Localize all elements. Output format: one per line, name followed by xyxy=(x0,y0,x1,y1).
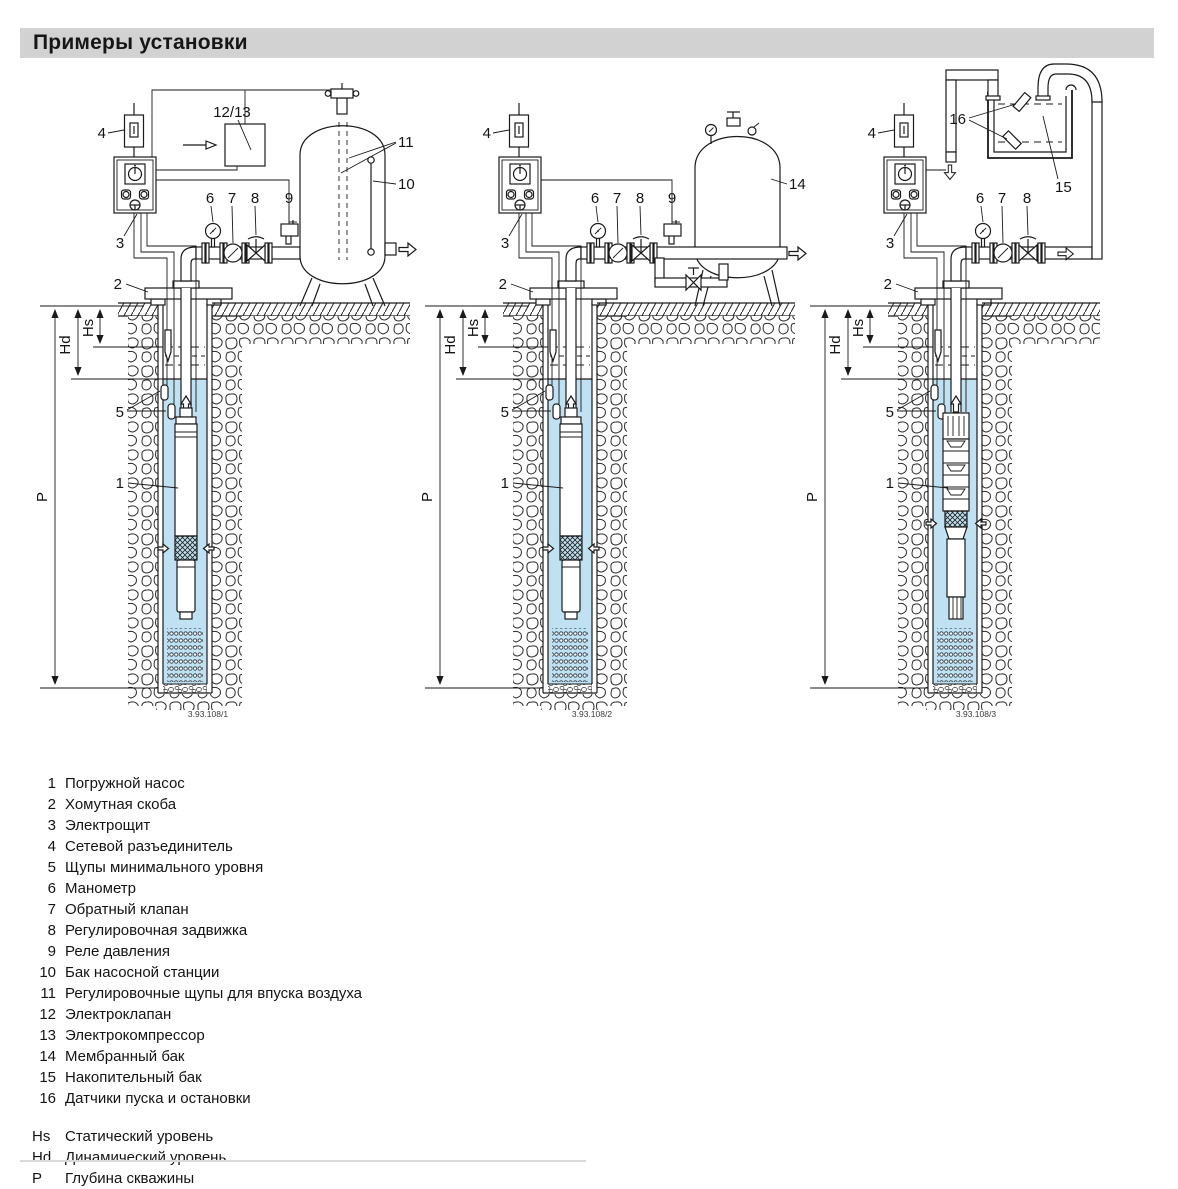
legend-item-number: 8 xyxy=(32,920,56,941)
legend-item-text: Щупы минимального уровня xyxy=(65,857,263,878)
callout-4: 4 xyxy=(483,125,491,142)
diagram-well-with-storage-tank: 4 3 2 5 1 6 7 8 16 15 Hs Hd P 3.93.108/3 xyxy=(804,64,1102,719)
bottom-divider xyxy=(20,1160,586,1162)
callout-2: 2 xyxy=(114,276,122,293)
callout-7: 7 xyxy=(228,190,236,207)
legend-item-text: Накопительный бак xyxy=(65,1067,202,1088)
electrovalve-compressor-box xyxy=(225,124,265,166)
dim-label-hd: Hd xyxy=(827,335,844,354)
legend-item-text: Регулировочная задвижка xyxy=(65,920,247,941)
callout-8: 8 xyxy=(1023,190,1031,207)
dim-label-hs: Hs xyxy=(850,319,867,337)
figure-number: 3.93.108/2 xyxy=(572,709,612,719)
diagram-well-with-pump-station-tank: 4 3 12/13 2 5 1 6 7 8 9 10 11 Hs Hd P 3.… xyxy=(34,83,416,719)
legend-item-text: Манометр xyxy=(65,878,136,899)
legend-item-text: Сетевой разъединитель xyxy=(65,836,233,857)
legend-item: 16Датчики пуска и остановки xyxy=(32,1088,362,1109)
legend-item: 2Хомутная скоба xyxy=(32,794,362,815)
figure-number: 3.93.108/1 xyxy=(188,709,228,719)
legend-item-number: 13 xyxy=(32,1025,56,1046)
figure-number: 3.93.108/3 xyxy=(956,709,996,719)
callout-5: 5 xyxy=(501,404,509,421)
legend: 1Погружной насос 2Хомутная скоба 3Электр… xyxy=(32,773,362,1189)
legend-item-number: 2 xyxy=(32,794,56,815)
dim-label-hs: Hs xyxy=(465,319,482,337)
legend-item-text: Статический уровень xyxy=(65,1126,213,1147)
legend-item-text: Обратный клапан xyxy=(65,899,189,920)
legend-item-number: Hd xyxy=(32,1147,56,1168)
legend-item-text: Реле давления xyxy=(65,941,170,962)
legend-item-number: 3 xyxy=(32,815,56,836)
membrane-tank xyxy=(695,112,780,306)
legend-item-text: Электрощит xyxy=(65,815,150,836)
callout-5: 5 xyxy=(116,404,124,421)
legend-item-text: Электроклапан xyxy=(65,1004,171,1025)
legend-item: HsСтатический уровень xyxy=(32,1126,362,1147)
legend-item-number: 12 xyxy=(32,1004,56,1025)
legend-item-number: Р xyxy=(32,1168,56,1189)
dim-label-hd: Hd xyxy=(57,335,74,354)
callout-7: 7 xyxy=(998,190,1006,207)
legend-item: 14Мембранный бак xyxy=(32,1046,362,1067)
callout-6: 6 xyxy=(591,190,599,207)
legend-item: HdДинамический уровень xyxy=(32,1147,362,1168)
dim-label-hd: Hd xyxy=(442,335,459,354)
legend-item: 5Щупы минимального уровня xyxy=(32,857,362,878)
callout-9: 9 xyxy=(668,190,676,207)
pump-station-tank xyxy=(300,83,416,306)
legend-dimensions: HsСтатический уровень HdДинамический уро… xyxy=(32,1126,362,1189)
callout-1: 1 xyxy=(501,475,509,492)
legend-item: 6Манометр xyxy=(32,878,362,899)
callout-1: 1 xyxy=(116,475,124,492)
legend-item-text: Динамический уровень xyxy=(65,1147,226,1168)
callout-2: 2 xyxy=(884,276,892,293)
dim-label-p: P xyxy=(419,492,436,502)
callout-5: 5 xyxy=(886,404,894,421)
legend-item-text: Электрокомпрессор xyxy=(65,1025,205,1046)
legend-item-number: 1 xyxy=(32,773,56,794)
legend-item-number: 16 xyxy=(32,1088,56,1109)
legend-item: 1Погружной насос xyxy=(32,773,362,794)
legend-item-number: 15 xyxy=(32,1067,56,1088)
legend-item: 4Сетевой разъединитель xyxy=(32,836,362,857)
dim-label-hs: Hs xyxy=(80,319,97,337)
legend-item-number: 11 xyxy=(32,983,56,1004)
callout-16: 16 xyxy=(949,111,966,128)
callout-2: 2 xyxy=(499,276,507,293)
callout-3: 3 xyxy=(501,235,509,252)
legend-item-text: Глубина скважины xyxy=(65,1168,194,1189)
legend-item-number: 14 xyxy=(32,1046,56,1067)
legend-item: 8Регулировочная задвижка xyxy=(32,920,362,941)
legend-item-text: Мембранный бак xyxy=(65,1046,184,1067)
legend-item-text: Регулировочные щупы для впуска воздуха xyxy=(65,983,362,1004)
legend-item-text: Хомутная скоба xyxy=(65,794,176,815)
callout-7: 7 xyxy=(613,190,621,207)
callout-9: 9 xyxy=(285,190,293,207)
callout-3: 3 xyxy=(116,235,124,252)
callout-6: 6 xyxy=(206,190,214,207)
callout-12-13: 12/13 xyxy=(213,104,251,121)
callout-8: 8 xyxy=(636,190,644,207)
callout-14: 14 xyxy=(789,176,806,193)
legend-item-text: Датчики пуска и остановки xyxy=(65,1088,251,1109)
legend-item-number: 7 xyxy=(32,899,56,920)
callout-15: 15 xyxy=(1055,179,1072,196)
legend-item: 12Электроклапан xyxy=(32,1004,362,1025)
legend-item: РГлубина скважины xyxy=(32,1168,362,1189)
legend-item: 7Обратный клапан xyxy=(32,899,362,920)
diagram-well-with-membrane-tank: 4 3 2 5 1 6 7 8 9 14 Hs Hd P 3.93.108/2 xyxy=(419,103,806,719)
callout-3: 3 xyxy=(886,235,894,252)
callout-11: 11 xyxy=(398,134,414,151)
legend-item: 10Бак насосной станции xyxy=(32,962,362,983)
legend-item-number: 4 xyxy=(32,836,56,857)
legend-item: 3Электрощит xyxy=(32,815,362,836)
callout-8: 8 xyxy=(251,190,259,207)
installation-diagrams: 4 3 12/13 2 5 1 6 7 8 9 10 11 Hs Hd P 3.… xyxy=(0,40,1178,775)
callout-4: 4 xyxy=(98,125,106,142)
legend-item: 11Регулировочные щупы для впуска воздуха xyxy=(32,983,362,1004)
legend-item: 15Накопительный бак xyxy=(32,1067,362,1088)
dim-label-p: P xyxy=(34,492,51,502)
storage-tank xyxy=(988,85,1076,158)
legend-item-number: Hs xyxy=(32,1126,56,1147)
callout-6: 6 xyxy=(976,190,984,207)
legend-item-number: 10 xyxy=(32,962,56,983)
legend-item: 13Электрокомпрессор xyxy=(32,1025,362,1046)
legend-item-number: 6 xyxy=(32,878,56,899)
callout-10: 10 xyxy=(398,176,415,193)
legend-item: 9Реле давления xyxy=(32,941,362,962)
legend-item-number: 9 xyxy=(32,941,56,962)
callout-1: 1 xyxy=(886,475,894,492)
legend-item-number: 5 xyxy=(32,857,56,878)
air-inlet-arrow xyxy=(206,141,216,149)
legend-item-text: Погружной насос xyxy=(65,773,185,794)
dim-label-p: P xyxy=(804,492,821,502)
legend-item-text: Бак насосной станции xyxy=(65,962,219,983)
callout-4: 4 xyxy=(868,125,876,142)
